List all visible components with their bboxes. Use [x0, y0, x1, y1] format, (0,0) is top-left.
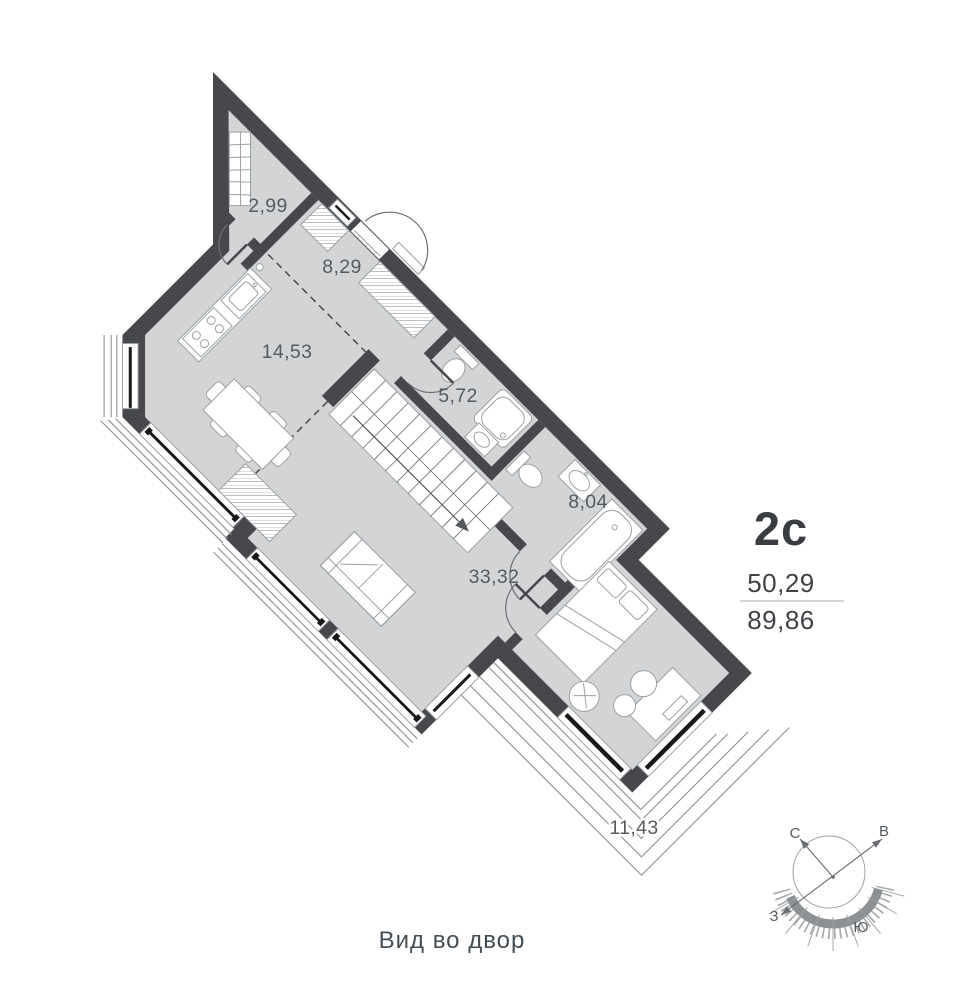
compass-east-label: В	[879, 823, 889, 840]
compass-north-label: С	[790, 825, 801, 842]
view-caption: Вид во двор	[379, 927, 526, 954]
floorplan-svg: 2,99 8,29 14,53 5,72 8,04 33,32 11,43 2с…	[0, 0, 960, 1000]
room-area-hallway: 8,29	[322, 256, 362, 278]
room-area-terrace: 11,43	[609, 817, 658, 839]
unit-total-area: 89,86	[747, 605, 815, 635]
unit-info: 2с 50,29 89,86	[740, 502, 844, 635]
unit-type-label: 2с	[754, 502, 808, 555]
compass-south-label: Ю	[853, 919, 868, 936]
floorplan-page: 2,99 8,29 14,53 5,72 8,04 33,32 11,43 2с…	[0, 0, 960, 1000]
room-area-kitchen: 14,53	[262, 341, 313, 363]
room-area-wardrobe: 2,99	[248, 195, 288, 217]
compass-west-label: З	[769, 908, 778, 925]
room-area-living: 33,32	[469, 566, 520, 588]
room-area-bathroom2: 8,04	[568, 491, 608, 513]
sun-rays	[769, 887, 905, 951]
room-area-bathroom: 5,72	[438, 385, 478, 407]
compass-center-dot	[831, 875, 835, 879]
floor-plan	[0, 46, 855, 928]
unit-living-area: 50,29	[747, 568, 815, 598]
compass-rose: С В З Ю	[769, 823, 905, 951]
